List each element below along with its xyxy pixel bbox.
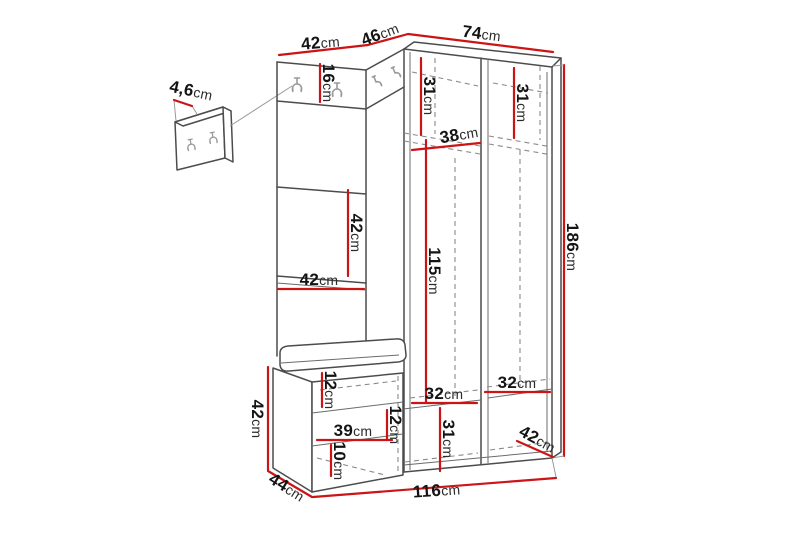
dimension-label: 186cm — [563, 223, 582, 272]
dimension-label: 16cm — [319, 64, 338, 103]
dimension-label: 115cm — [425, 247, 444, 295]
dimension-label: 42cm — [347, 214, 366, 253]
dim-bottom-left-inner-width: 32cm — [412, 384, 477, 403]
detail-leader-line — [230, 86, 292, 126]
coat-hook-icon — [391, 66, 400, 79]
diagram-canvas: 42cm 46cm 74cm 4,6cm 16cm 31cm 31cm — [0, 0, 800, 533]
bench — [273, 339, 556, 492]
dimension-label: 31cm — [513, 84, 532, 123]
dimension-label: 39cm — [334, 421, 373, 440]
dimension-label: 31cm — [439, 420, 458, 459]
dim-seat-thickness: 12cm — [321, 371, 340, 410]
furniture-dimension-diagram: 42cm 46cm 74cm 4,6cm 16cm 31cm 31cm — [0, 0, 800, 533]
wardrobe-bottom-edge — [404, 458, 552, 472]
dimension-label: 42cm — [300, 270, 339, 289]
dim-total-height: 186cm — [552, 65, 582, 458]
dimension-label: 10cm — [330, 442, 349, 481]
dim-bench-middle-height: 12cm — [386, 406, 405, 445]
dim-bottom-right-inner-width: 32cm — [485, 373, 550, 392]
dimension-label: 46cm — [359, 18, 402, 50]
shelf-line — [277, 187, 366, 194]
dim-middle-panel-height: 42cm — [347, 190, 366, 276]
corner-section — [366, 49, 404, 109]
dimension-label: 32cm — [425, 384, 464, 403]
dimension-label: 42cm — [248, 400, 267, 439]
dimension-extension-line — [552, 458, 556, 477]
dimension-label: 116cm — [412, 479, 461, 501]
corner-top-edge — [366, 49, 404, 70]
dim-hanging-space-height: 115cm — [425, 140, 444, 402]
dim-bench-height: 42cm — [248, 367, 268, 470]
dim-hook-panel-height: 16cm — [319, 64, 338, 103]
dim-wall-panel-depth: 4,6cm — [168, 77, 215, 106]
coat-hook-icon — [292, 78, 301, 91]
dim-left-top-compartment-height: 31cm — [420, 58, 439, 135]
wardrobe-top-face — [404, 42, 561, 67]
dim-top-left-width: 42cm — [279, 31, 368, 55]
dim-top-corner-width: 46cm — [359, 18, 408, 50]
dimension-line — [174, 100, 192, 106]
corner-hook-panel-bottom-edge — [366, 87, 404, 109]
wall-panel-side-face — [223, 107, 233, 162]
coat-hook-icon — [372, 75, 381, 88]
dimension-extension-line — [552, 65, 564, 458]
dimension-label: 12cm — [321, 371, 340, 410]
left-column — [277, 62, 366, 356]
dimension-label: 31cm — [420, 77, 439, 116]
dim-middle-panel-width: 42cm — [278, 270, 364, 289]
dimension-label: 42cm — [300, 31, 340, 53]
dim-bench-base-height: 10cm — [330, 442, 349, 481]
wardrobe-back-right-edge — [552, 58, 561, 458]
dim-right-top-compartment-height: 31cm — [513, 68, 532, 138]
bench-cushion — [280, 339, 406, 371]
dimension-label: 12cm — [386, 406, 405, 445]
dimension-label: 32cm — [498, 373, 537, 392]
